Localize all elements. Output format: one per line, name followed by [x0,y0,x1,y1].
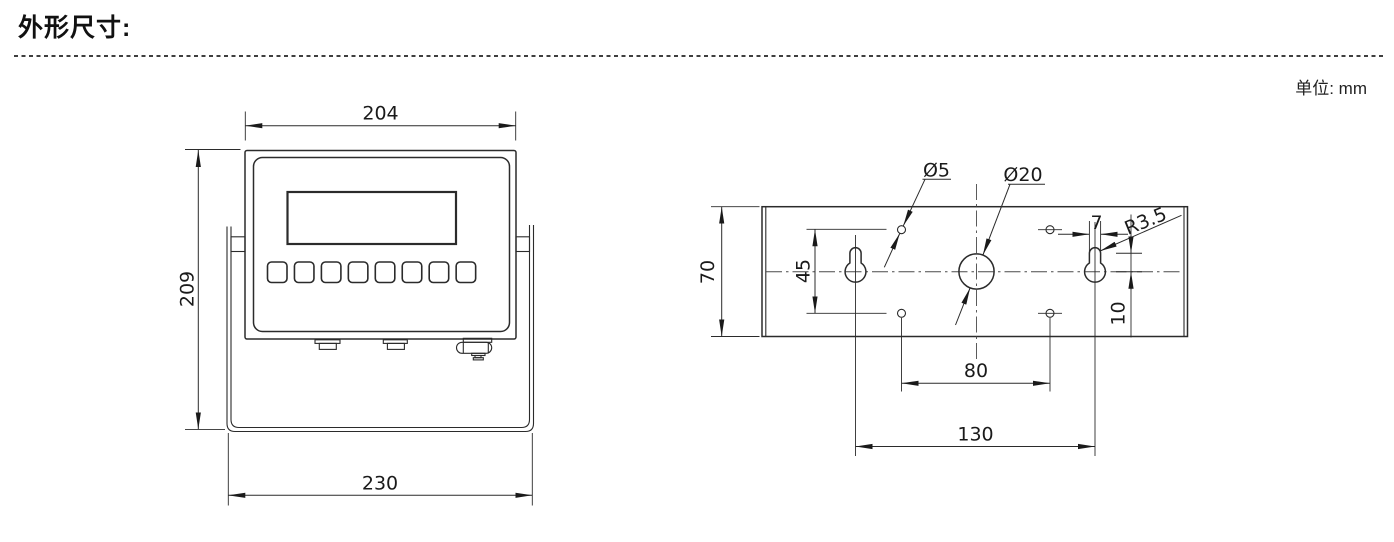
keypad-button [294,262,314,283]
dim-bottom-width-label: 230 [362,473,398,495]
small-hole-bottom-left [898,309,906,317]
bracket-tab-left [231,237,245,252]
keypad-button [429,262,449,283]
keypad-button [348,262,368,283]
bracket-tab-right [516,237,530,252]
small-hole-top-left [898,226,906,234]
keypad-button [402,262,422,283]
dim-top-width: 204 [245,103,515,141]
keypad-button [268,262,288,283]
dim-bottom-width: 230 [228,433,532,506]
connector-tab-1 [315,340,340,350]
leader-large-hole-dia: Ø20 [956,164,1046,325]
keypad-button [375,262,395,283]
dim-hole-spacing: 80 [902,360,1051,383]
dim-plate-height-label: 70 [697,260,719,284]
cable-gland [457,338,492,360]
keypad-button [321,262,341,283]
indicator-display [288,192,457,244]
keypad [268,262,476,283]
slot-radius-label: R3.5 [1122,203,1171,240]
dim-plate-height: 70 [697,207,760,337]
dim-keyhole-spacing-label: 130 [957,424,993,446]
keypad-button [456,262,476,283]
dimension-drawing-page: 外形尺寸: 单位: mm [0,0,1394,542]
large-hole-dia-label: Ø20 [1003,164,1042,186]
leader-small-hole-dia: Ø5 [884,160,951,268]
connector-tab-2 [383,340,407,350]
rear-view-drawing: 70 45 Ø5 Ø20 [697,160,1188,457]
dim-hole-spacing-label: 80 [964,360,988,382]
drawing-canvas: 204 209 230 [0,0,1394,542]
dim-keyhole-spacing: 130 [856,424,1096,447]
mounting-bracket-outer [227,225,534,432]
dim-slot-width: 7 [1058,212,1128,251]
dim-slot-offset-label: 10 [1108,301,1130,325]
mounting-bracket-inner [231,225,530,428]
leader-slot-radius: R3.5 [1100,203,1181,251]
small-hole-dia-label: Ø5 [923,160,950,182]
dim-slot-width-label: 7 [1090,212,1102,234]
front-view-drawing: 204 209 230 [177,103,534,506]
dim-top-width-label: 204 [362,103,398,125]
dim-hole-span-label: 45 [793,259,815,283]
dim-height-label: 209 [177,271,199,307]
